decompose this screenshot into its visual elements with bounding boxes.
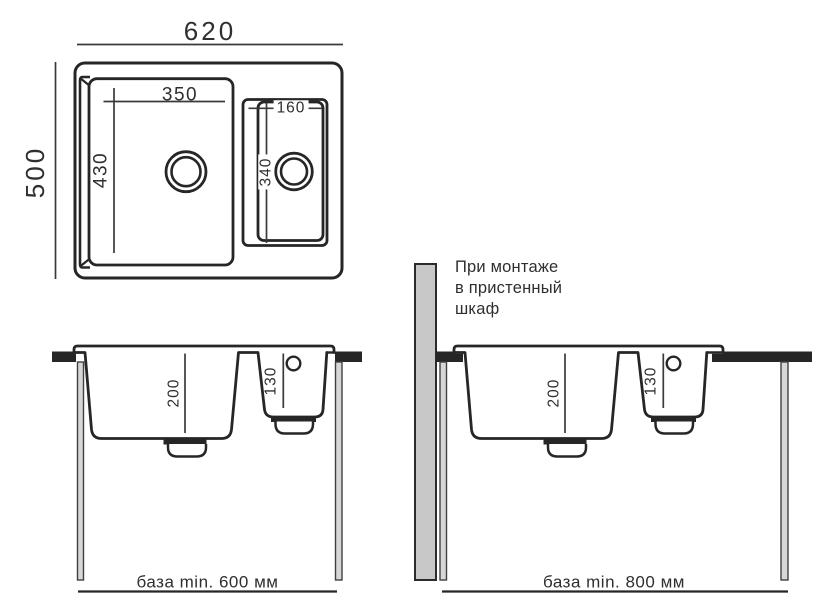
right-base-label: база min. 800 мм [543, 573, 685, 590]
countertop-right-segment [712, 352, 812, 363]
second-bowl-height-dim-label: 340 [258, 155, 274, 190]
countertop-right-segment [335, 352, 362, 363]
sink-technical-drawing: 620 500 350 430 160 340 200 130 база min… [0, 0, 837, 616]
left-main-bowl-depth-label: 200 [166, 378, 182, 407]
wall-panel [415, 264, 436, 580]
cabinet-side-left [440, 362, 447, 580]
cabinet-side-right [781, 362, 788, 580]
cabinet-side-left [78, 362, 84, 580]
overall-width-dim-label: 620 [184, 18, 236, 44]
drawing-svg [0, 0, 837, 616]
overall-height-dim-label: 500 [22, 146, 48, 198]
left-second-bowl-depth-label: 130 [263, 366, 279, 395]
left-base-label: база min. 600 мм [137, 573, 279, 590]
sink-cross-section [74, 353, 327, 457]
sink-rim [74, 346, 334, 354]
note-line-3: шкаф [455, 299, 562, 320]
front-section-left [52, 346, 362, 592]
second-bowl-width-dim-label: 160 [274, 101, 309, 117]
sink-rim [454, 346, 723, 354]
main-bowl-width-dim-label: 350 [162, 85, 198, 104]
sink-cross-section [454, 353, 707, 457]
right-main-bowl-depth-label: 200 [546, 378, 562, 407]
countertop-left-segment [52, 352, 76, 363]
cabinet-side-right [336, 362, 343, 580]
right-second-bowl-depth-label: 130 [643, 366, 659, 395]
note-line-2: в пристенный [455, 278, 562, 299]
main-bowl-height-dim-label: 430 [91, 152, 110, 188]
wall-cabinet-note: При монтаже в пристенный шкаф [455, 257, 562, 320]
note-line-1: При монтаже [455, 257, 562, 278]
